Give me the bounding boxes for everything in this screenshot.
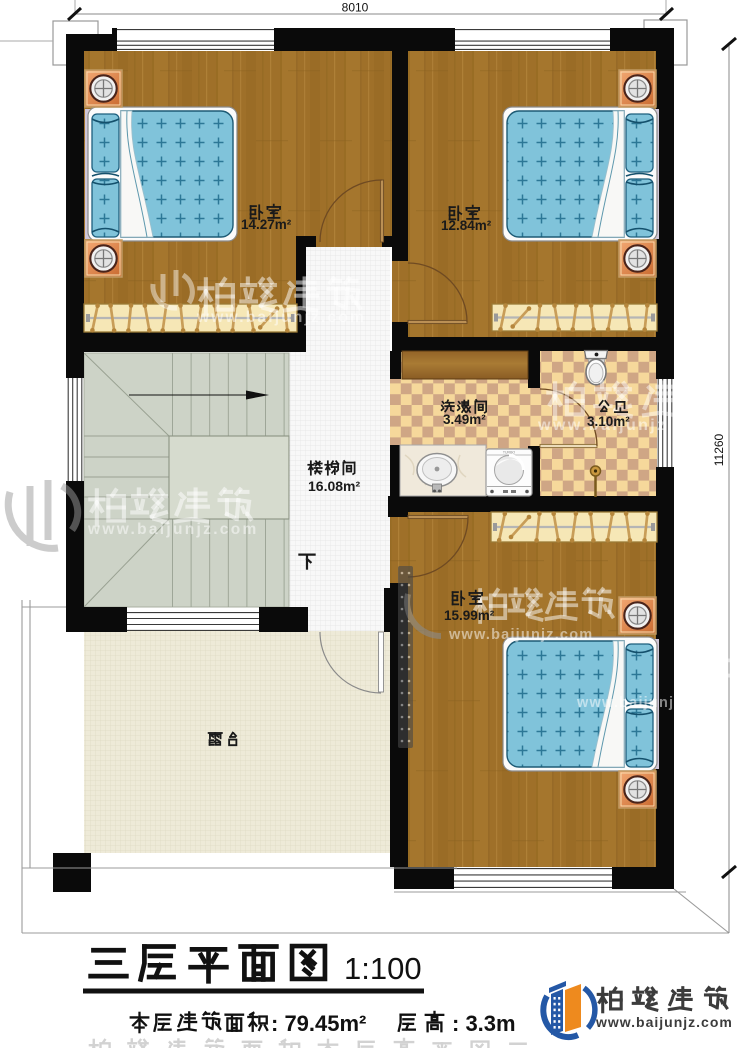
svg-text:3.10m²: 3.10m²	[587, 414, 630, 429]
svg-text:3.49m²: 3.49m²	[443, 412, 486, 427]
svg-text:16.08m²: 16.08m²	[308, 478, 360, 494]
svg-text:8010: 8010	[342, 1, 369, 15]
svg-text:www.baijunjz.com: www.baijunjz.com	[87, 521, 259, 538]
svg-text:www.baijunjz.com: www.baijunjz.com	[595, 1014, 733, 1030]
svg-text:14.27m²: 14.27m²	[241, 217, 292, 232]
svg-text:www.baijunjz.com: www.baijunjz.com	[196, 309, 366, 326]
svg-text:15.99m²: 15.99m²	[444, 608, 495, 623]
svg-text:: 3.3m: : 3.3m	[452, 1011, 516, 1036]
svg-text:: 79.45m²: : 79.45m²	[271, 1011, 366, 1036]
svg-text:www.baijunjz.com: www.baijunjz.com	[448, 627, 593, 643]
svg-text:TURBO: TURBO	[503, 451, 516, 455]
svg-text:www.baijunjz.com: www.baijunjz.com	[576, 695, 721, 711]
svg-text:1:100: 1:100	[344, 951, 422, 986]
svg-text:11260: 11260	[712, 433, 726, 466]
svg-text:12.84m²: 12.84m²	[441, 218, 492, 233]
